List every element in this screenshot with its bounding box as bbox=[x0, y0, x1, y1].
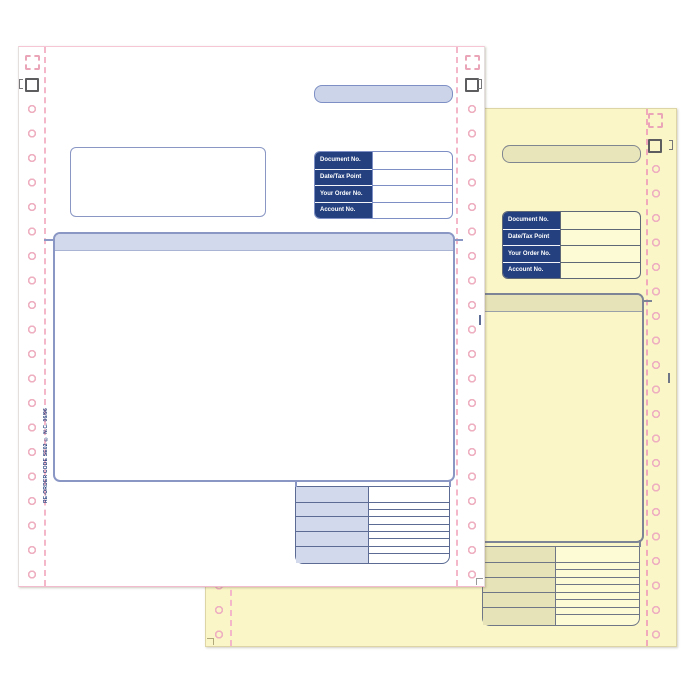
doc-label-account-no: Account No. bbox=[503, 262, 560, 279]
totals-gridline bbox=[368, 524, 449, 525]
totals-gridline bbox=[555, 584, 639, 585]
corner-notch bbox=[476, 578, 483, 585]
totals-connector bbox=[295, 480, 297, 487]
invoice-body-header-bar bbox=[55, 234, 453, 251]
company-name-pill bbox=[502, 145, 641, 163]
table-row: Account No. bbox=[315, 202, 452, 219]
table-row: Account No. bbox=[503, 262, 640, 279]
totals-gridline bbox=[368, 509, 449, 510]
table-row: Document No. bbox=[315, 152, 452, 169]
doc-value-date-tax-point bbox=[560, 229, 640, 246]
white-top-form: Document No. Date/Tax Point Your Order N… bbox=[18, 46, 485, 587]
doc-value-document-no bbox=[372, 152, 452, 169]
corner-square-dashed-icon bbox=[648, 113, 663, 128]
edge-bracket-mark bbox=[669, 140, 673, 150]
document-info-table: Document No. Date/Tax Point Your Order N… bbox=[314, 151, 453, 219]
doc-label-your-order-no: Your Order No. bbox=[503, 245, 560, 262]
totals-gridline bbox=[368, 538, 449, 539]
totals-gridline bbox=[296, 502, 449, 503]
sprocket-holes-left bbox=[25, 97, 39, 584]
totals-gridline bbox=[296, 531, 449, 532]
perforation-line-right bbox=[646, 109, 648, 646]
totals-table bbox=[482, 546, 640, 626]
doc-label-your-order-no: Your Order No. bbox=[315, 185, 372, 202]
corner-square-solid-icon bbox=[25, 78, 39, 92]
totals-gridline bbox=[555, 614, 639, 615]
corner-square-solid-icon bbox=[648, 139, 662, 153]
sprocket-holes-right bbox=[465, 97, 479, 584]
totals-label-column bbox=[483, 547, 556, 625]
totals-gridline bbox=[368, 553, 449, 554]
doc-label-document-no: Document No. bbox=[503, 212, 560, 229]
registration-dash bbox=[668, 373, 670, 383]
doc-value-account-no bbox=[560, 262, 640, 279]
fold-tick-left bbox=[44, 239, 53, 241]
corner-notch bbox=[207, 638, 214, 645]
fold-tick-right bbox=[454, 239, 463, 241]
corner-square-solid-icon bbox=[465, 78, 479, 92]
table-row: Date/Tax Point bbox=[503, 229, 640, 246]
totals-gridline bbox=[296, 546, 449, 547]
edge-bracket-mark bbox=[478, 79, 482, 89]
totals-gridline bbox=[483, 577, 639, 578]
doc-value-document-no bbox=[560, 212, 640, 229]
invoice-body-box bbox=[53, 232, 455, 482]
totals-gridline bbox=[555, 599, 639, 600]
doc-label-document-no: Document No. bbox=[315, 152, 372, 169]
corner-square-dashed-icon bbox=[25, 55, 40, 70]
totals-connector bbox=[449, 480, 451, 487]
totals-connector bbox=[639, 540, 641, 547]
doc-value-account-no bbox=[372, 202, 452, 219]
totals-table bbox=[295, 486, 450, 564]
address-window bbox=[70, 147, 266, 217]
table-row: Your Order No. bbox=[503, 245, 640, 262]
totals-gridline bbox=[483, 607, 639, 608]
doc-label-date-tax-point: Date/Tax Point bbox=[503, 229, 560, 246]
fold-tick-right bbox=[643, 300, 652, 302]
doc-label-account-no: Account No. bbox=[315, 202, 372, 219]
perforation-line-right bbox=[456, 47, 458, 586]
sprocket-holes-right bbox=[649, 157, 663, 644]
document-info-table: Document No. Date/Tax Point Your Order N… bbox=[502, 211, 641, 279]
totals-gridline bbox=[555, 569, 639, 570]
invoice-forms-product-image: Document No. Date/Tax Point Your Order N… bbox=[0, 0, 700, 700]
totals-gridline bbox=[483, 562, 639, 563]
table-row: Date/Tax Point bbox=[315, 169, 452, 186]
table-row: Document No. bbox=[503, 212, 640, 229]
doc-label-date-tax-point: Date/Tax Point bbox=[315, 169, 372, 186]
reorder-code-text: RE-ORDER CODE SE02 © N.C. 06/96 bbox=[43, 403, 54, 503]
doc-value-your-order-no bbox=[560, 245, 640, 262]
table-row: Your Order No. bbox=[315, 185, 452, 202]
totals-label-column bbox=[296, 487, 369, 563]
edge-bracket-mark bbox=[19, 79, 23, 89]
doc-value-your-order-no bbox=[372, 185, 452, 202]
totals-gridline bbox=[483, 592, 639, 593]
perforation-line-left bbox=[44, 47, 46, 586]
company-name-pill bbox=[314, 85, 453, 103]
corner-square-dashed-icon bbox=[465, 55, 480, 70]
registration-dash bbox=[479, 315, 481, 325]
totals-gridline bbox=[296, 516, 449, 517]
doc-value-date-tax-point bbox=[372, 169, 452, 186]
